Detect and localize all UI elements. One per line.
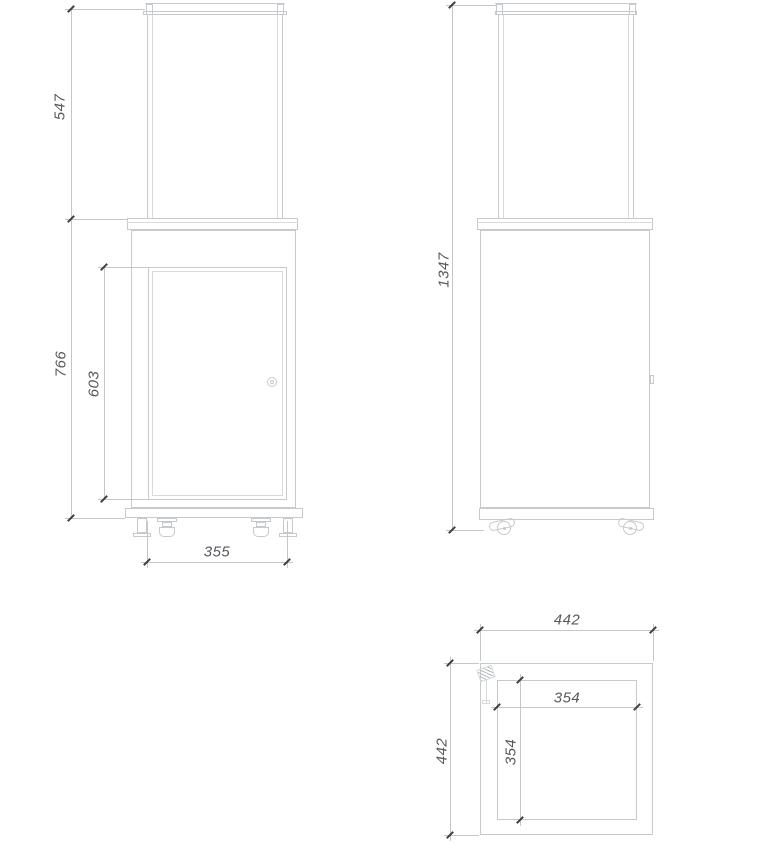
- side-door-hinge: [650, 375, 654, 384]
- front-door-inner-panel: [152, 271, 283, 496]
- front-base-plate: [125, 508, 303, 518]
- side-column-inner-left: [503, 15, 504, 219]
- dim-label-door-height: 603: [86, 371, 103, 398]
- dim-label-glass-height: 547: [52, 94, 69, 121]
- dim-label-inner-width: 354: [554, 690, 581, 707]
- front-foot-right-flange: [279, 533, 297, 537]
- front-foot-right-stem: [283, 518, 293, 533]
- front-cap-rail: [143, 11, 287, 15]
- dim-label-outer-width: 442: [554, 612, 581, 629]
- dim-label-body-height: 766: [53, 351, 70, 378]
- side-caster-right-hub: [629, 527, 632, 530]
- side-column-right-edge: [633, 15, 634, 219]
- technical-drawing: 547 766 603 355: [0, 0, 777, 844]
- ext-line-base: [65, 518, 125, 519]
- front-caster-left-wheel: [159, 527, 175, 537]
- front-cap-top-line: [145, 3, 285, 4]
- ext-line-lid: [65, 219, 127, 220]
- dim-label-total-height: 1347: [436, 252, 453, 287]
- dim-label-outer-depth: 442: [434, 738, 451, 765]
- dim-line-442-top: [474, 630, 659, 631]
- side-column-left-edge: [498, 15, 499, 219]
- side-cabinet-body: [480, 230, 650, 508]
- dim-label-door-width: 355: [204, 544, 231, 561]
- dim-line-354-horizontal: [491, 707, 643, 708]
- side-cap-rail: [495, 11, 637, 15]
- front-caster-right-wheel: [253, 527, 269, 537]
- side-caster-left-hub: [503, 527, 506, 530]
- ext-line-door-bottom: [98, 499, 148, 500]
- dim-label-inner-depth: 354: [503, 739, 520, 766]
- ext-line-side-top: [446, 5, 496, 6]
- top-hinge-foot: [482, 700, 490, 704]
- dim-line-547-766: [71, 9, 72, 519]
- front-lid-seam-line: [127, 222, 298, 223]
- front-cabinet-lid: [127, 218, 298, 230]
- side-column-inner-right: [628, 15, 629, 219]
- door-lock-keyhole-icon: [270, 380, 274, 384]
- ext-line-door-top: [98, 267, 148, 268]
- front-column-left-edge: [147, 15, 148, 219]
- front-column-inner-left: [152, 15, 153, 219]
- front-column-right-edge: [282, 15, 283, 219]
- dim-line-354-vertical: [520, 674, 521, 826]
- dim-line-355: [141, 562, 293, 563]
- side-lid-seam-line: [477, 222, 653, 223]
- ext-line-top: [65, 9, 145, 10]
- side-cap-top-line: [495, 3, 637, 4]
- side-cabinet-lid: [477, 218, 653, 230]
- front-foot-left-stem: [137, 518, 147, 533]
- dim-line-603: [104, 267, 105, 499]
- front-foot-left-flange: [133, 533, 151, 537]
- front-column-inner-right: [277, 15, 278, 219]
